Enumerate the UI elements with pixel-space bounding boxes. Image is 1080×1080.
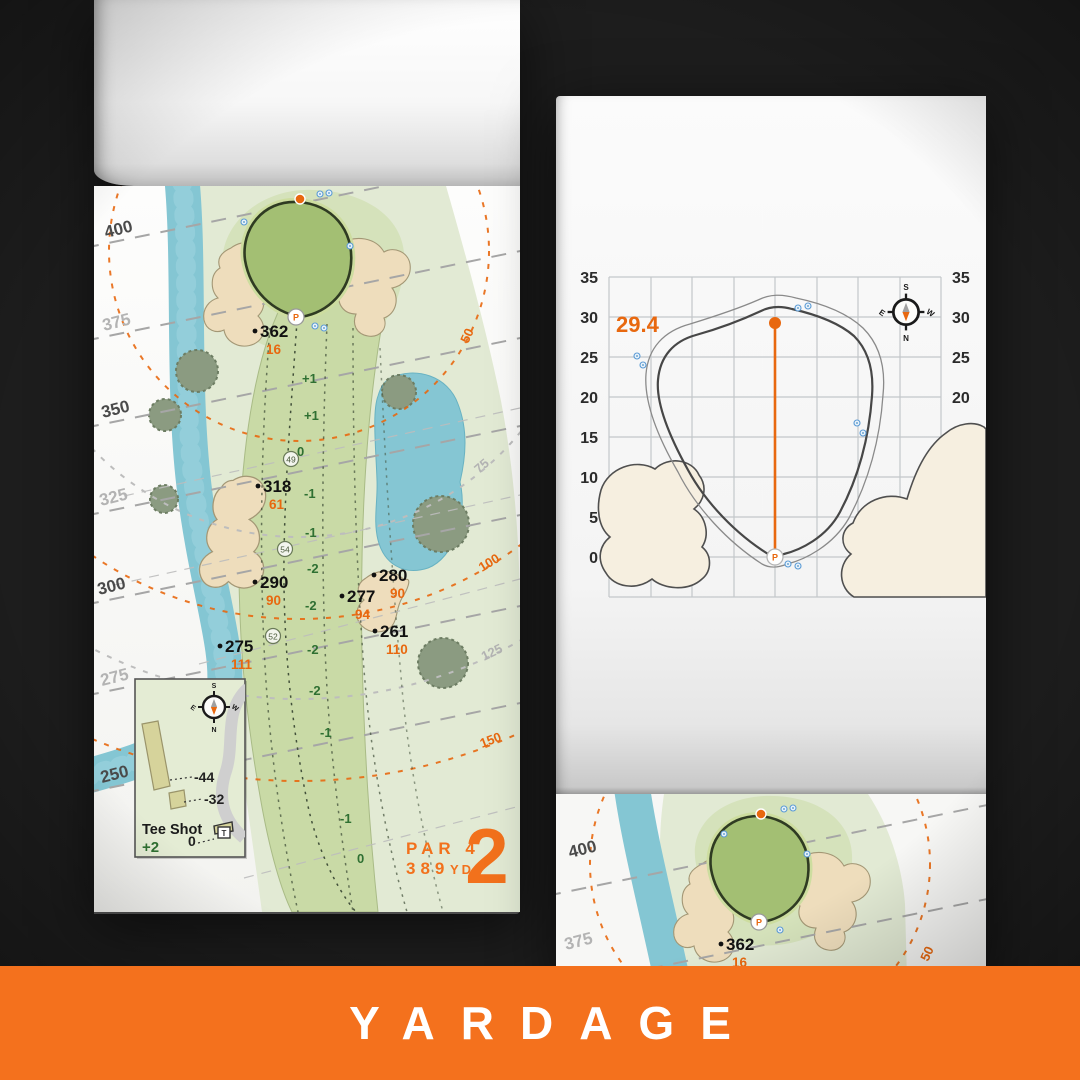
- elevation-value: -1: [305, 525, 317, 540]
- tree: [413, 496, 469, 552]
- sprinkler-icon: [321, 325, 327, 331]
- elevation-value: -2: [307, 642, 319, 657]
- carry-value: 277: [347, 587, 375, 606]
- sprinkler-icon: [804, 851, 810, 857]
- axis-value: 5: [589, 510, 598, 527]
- sprinkler-icon: [312, 323, 318, 329]
- sprinkler-icon: [317, 191, 323, 197]
- sprinkler-icon: [241, 219, 247, 225]
- axis-value: 25: [952, 350, 970, 367]
- pin-marker: [295, 194, 305, 204]
- axis-value: 35: [952, 270, 970, 287]
- carry-value: 275: [225, 637, 253, 656]
- flipped-blank-page: [94, 0, 520, 186]
- hole-number: 2: [465, 812, 508, 900]
- pin-depth-line: P: [767, 317, 783, 565]
- front-value: 16: [266, 342, 282, 357]
- tee-shot-title: Tee Shot: [142, 822, 202, 838]
- tee-offset-long: -44: [194, 769, 214, 785]
- chart-compass: S W N E: [877, 283, 936, 343]
- pin-letter: P: [756, 918, 762, 928]
- elevation-value: -1: [304, 486, 316, 501]
- elevation-value: -2: [305, 598, 317, 613]
- front-value: 61: [269, 497, 285, 512]
- compass-top: S: [903, 283, 909, 292]
- axis-value: 30: [580, 310, 598, 327]
- elevation-value: -1: [340, 811, 352, 826]
- sprinkler-icon: [795, 305, 801, 311]
- pin-depth-value: 29.4: [616, 312, 660, 337]
- hole-map-graphic: 400 375 350 325 300 275 250 50 75 100 12…: [94, 186, 520, 912]
- tee-shot-inset: T -44 -32 0 Tee Shot +2 S W N E: [135, 679, 248, 859]
- circled-value: 49: [286, 455, 296, 465]
- axis-value: 20: [580, 390, 598, 407]
- pin-marker: [756, 809, 766, 819]
- sprinkler-icon: [785, 561, 791, 567]
- sprinkler-icon: [854, 420, 860, 426]
- sprinkler-icon: [860, 430, 866, 436]
- carry-value: 290: [260, 573, 288, 592]
- axis-value: 20: [952, 390, 970, 407]
- sprinkler-icon: [640, 362, 646, 368]
- sprinkler-icon: [777, 927, 783, 933]
- tree: [149, 399, 181, 431]
- compass-top: S: [212, 683, 217, 690]
- compass-bottom: N: [211, 727, 216, 734]
- tee-marker-letter: T: [222, 829, 227, 838]
- pin-letter: P: [293, 313, 299, 323]
- axis-value: 25: [580, 350, 598, 367]
- sprinkler-icon: [795, 563, 801, 569]
- axis-labels-left: 35 30 25 20 15 10 5 0: [580, 270, 598, 567]
- green-detail-graphic: 35 30 25 20 15 10 5 0 35 30 25 20 15 10 …: [556, 96, 986, 794]
- compass-icon: [888, 294, 925, 331]
- elevation-value: 0: [357, 851, 364, 866]
- sprinkler-icon: [634, 353, 640, 359]
- front-value: 90: [390, 586, 405, 601]
- axis-value: 0: [589, 550, 598, 567]
- tree: [176, 350, 218, 392]
- tee-box-forward: [169, 790, 186, 809]
- front-value: 94: [355, 607, 371, 622]
- elevation-value: -2: [309, 683, 321, 698]
- tee-shot-score: +2: [142, 839, 159, 856]
- right-booklet: 35 30 25 20 15 10 5 0 35 30 25 20 15 10 …: [556, 96, 986, 980]
- front-value: 110: [386, 642, 408, 657]
- elevation-value: -1: [320, 725, 332, 740]
- pin-letter: P: [772, 553, 778, 563]
- sprinkler-icon: [326, 190, 332, 196]
- carry-value: 318: [263, 477, 291, 496]
- yardage-banner: YARDAGE: [0, 966, 1080, 1080]
- front-value: 90: [266, 593, 281, 608]
- elevation-value: +1: [304, 408, 319, 423]
- axis-value: 15: [580, 430, 598, 447]
- sprinkler-icon: [721, 831, 727, 837]
- next-hole-page: 400 375 50 P 362 16: [556, 794, 986, 980]
- axis-value: 35: [580, 270, 598, 287]
- circled-value: 52: [268, 632, 278, 642]
- elevation-value: -2: [307, 561, 319, 576]
- axis-value: 10: [580, 470, 598, 487]
- front-value: 111: [231, 657, 253, 672]
- hole-map-page: 400 375 350 325 300 275 250 50 75 100 12…: [94, 186, 520, 912]
- pin-dot: [769, 317, 781, 329]
- sprinkler-icon: [347, 243, 353, 249]
- left-booklet: 400 375 350 325 300 275 250 50 75 100 12…: [94, 0, 520, 912]
- sprinkler-icon: [805, 303, 811, 309]
- tree: [382, 375, 416, 409]
- sprinkler-icon: [781, 806, 787, 812]
- hole-distance-value: 389: [406, 859, 449, 878]
- carry-value: 280: [379, 566, 407, 585]
- carry-value: 362: [260, 322, 288, 341]
- green-detail-page: 35 30 25 20 15 10 5 0 35 30 25 20 15 10 …: [556, 96, 986, 794]
- chart-bunkers: [598, 424, 986, 597]
- product-photo-stage: { "banner": { "label": "YARDAGE" }, "col…: [0, 0, 1080, 1080]
- elevation-value: +1: [302, 371, 317, 386]
- compass-bottom: N: [903, 334, 909, 343]
- next-hole-graphic: 400 375 50 P 362 16: [556, 794, 986, 980]
- carry-value: 362: [726, 935, 754, 954]
- banner-title: YARDAGE: [323, 966, 757, 1080]
- carry-value: 261: [380, 622, 408, 641]
- sprinkler-icon: [790, 805, 796, 811]
- axis-value: 30: [952, 310, 970, 327]
- circled-value: 54: [280, 545, 290, 555]
- green-entry-circle: P: [288, 309, 304, 325]
- tee-offset-short: -32: [204, 791, 224, 807]
